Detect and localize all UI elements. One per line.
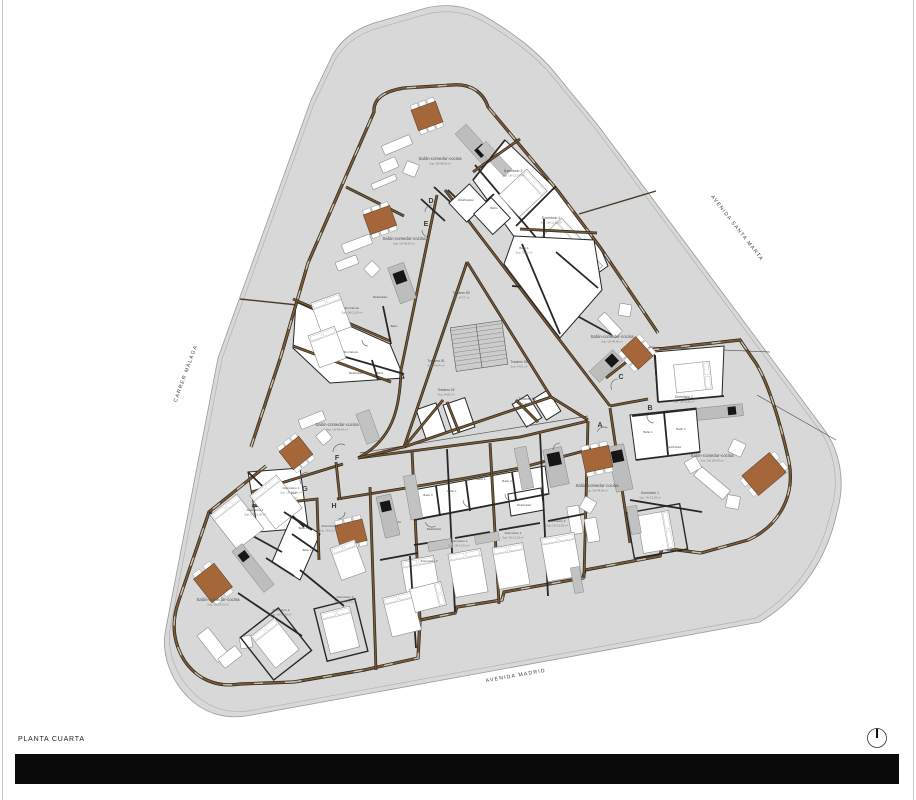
svg-text:Salón-comedor-cocina: Salón-comedor-cocina xyxy=(691,453,735,458)
svg-text:Baño: Baño xyxy=(490,206,498,210)
svg-text:Distribuidor: Distribuidor xyxy=(349,371,364,375)
svg-text:C: C xyxy=(618,374,623,381)
svg-text:Sup. 44,36 m²: Sup. 44,36 m² xyxy=(519,401,536,405)
svg-text:Salón-comedor-cocina: Salón-comedor-cocina xyxy=(197,597,241,602)
svg-text:Baño: Baño xyxy=(391,324,398,328)
svg-text:Baño 2: Baño 2 xyxy=(303,548,312,552)
svg-text:Trastero 51: Trastero 51 xyxy=(427,359,444,363)
svg-text:Sup. Útil 13,26 m²: Sup. Útil 13,26 m² xyxy=(639,495,661,499)
svg-text:Trastero 52: Trastero 52 xyxy=(437,388,454,392)
svg-text:F: F xyxy=(335,455,340,462)
svg-text:Sup. Útil 48,05 m²: Sup. Útil 48,05 m² xyxy=(429,161,451,165)
svg-text:D: D xyxy=(428,198,433,205)
svg-text:Sup. Útil 12,61 m²: Sup. Útil 12,61 m² xyxy=(334,599,356,603)
svg-text:Distribuidor: Distribuidor xyxy=(427,527,442,531)
svg-text:Sup. Útil 11,82 m²: Sup. Útil 11,82 m² xyxy=(673,399,694,403)
svg-text:Salón-comedor-cocina: Salón-comedor-cocina xyxy=(383,236,427,241)
svg-text:Sup. Útil 12,42 m²: Sup. Útil 12,42 m² xyxy=(270,612,292,616)
svg-text:Sup. Útil 13,61 m²: Sup. Útil 13,61 m² xyxy=(448,543,470,547)
svg-text:Distribuidor: Distribuidor xyxy=(373,295,388,299)
svg-text:Dormitorio 1: Dormitorio 1 xyxy=(247,508,264,512)
svg-text:Sup. 44,04 m²: Sup. 44,04 m² xyxy=(428,363,445,367)
svg-text:Sup. 54,77 m²: Sup. 54,77 m² xyxy=(453,295,470,299)
svg-text:Baño 3: Baño 3 xyxy=(423,493,433,497)
svg-text:Dormitorio 2: Dormitorio 2 xyxy=(675,395,693,399)
svg-text:Sup. Útil 53,61 m²: Sup. Útil 53,61 m² xyxy=(207,602,229,606)
svg-text:Trastero 54: Trastero 54 xyxy=(518,397,535,401)
svg-text:B: B xyxy=(647,405,652,412)
svg-text:Sup. Útil 12,36 m²: Sup. Útil 12,36 m² xyxy=(546,523,568,527)
svg-text:Dormitorio 2: Dormitorio 2 xyxy=(549,519,566,523)
svg-text:Sup. Útil 48,38 m²: Sup. Útil 48,38 m² xyxy=(586,488,608,492)
svg-text:Dormitorio 2: Dormitorio 2 xyxy=(504,169,523,173)
svg-text:Dormitorio: Dormitorio xyxy=(345,306,360,310)
svg-text:Trastero 53: Trastero 53 xyxy=(510,360,527,364)
svg-text:H: H xyxy=(331,503,336,510)
svg-text:Dormitorio 1: Dormitorio 1 xyxy=(451,539,468,543)
svg-text:Dormitorio 3: Dormitorio 3 xyxy=(322,524,339,528)
svg-text:Sup. Útil 11,60 m²: Sup. Útil 11,60 m² xyxy=(341,310,362,314)
svg-text:Sup. 44,82 m²: Sup. 44,82 m² xyxy=(438,392,455,396)
svg-text:Dormitorio 2: Dormitorio 2 xyxy=(421,559,438,563)
svg-text:Sup. Útil 48,48 m²: Sup. Útil 48,48 m² xyxy=(326,427,348,431)
svg-text:PLANTA CUARTA: PLANTA CUARTA xyxy=(18,736,85,743)
svg-text:Baño 1: Baño 1 xyxy=(299,526,308,530)
svg-text:Baño 2: Baño 2 xyxy=(676,427,686,431)
svg-text:Sup. 44,01 m²: Sup. 44,01 m² xyxy=(511,364,528,368)
svg-text:Sup. Útil 12,09 m²: Sup. Útil 12,09 m² xyxy=(244,512,266,516)
svg-text:Baño 2: Baño 2 xyxy=(502,479,512,483)
svg-text:Sup. Útil 10,60 m²: Sup. Útil 10,60 m² xyxy=(280,490,302,494)
svg-text:Salón-comedor-cocina: Salón-comedor-cocina xyxy=(419,156,463,161)
svg-text:Dormitorio: Dormitorio xyxy=(344,350,359,354)
svg-text:Sup. Útil 12,26 m²: Sup. Útil 12,26 m² xyxy=(502,535,524,539)
svg-text:Sup. Útil 48,34 m²: Sup. Útil 48,34 m² xyxy=(393,241,415,245)
svg-text:Baño 1: Baño 1 xyxy=(476,477,486,481)
svg-text:Dormitorio 1: Dormitorio 1 xyxy=(505,531,522,535)
svg-text:Distribuidor: Distribuidor xyxy=(458,198,474,202)
svg-text:G: G xyxy=(302,486,308,493)
svg-text:Dormitorio 1: Dormitorio 1 xyxy=(283,486,300,490)
svg-text:E: E xyxy=(424,221,429,228)
svg-text:Salón-comedor-cocina: Salón-comedor-cocina xyxy=(576,483,620,488)
svg-text:Dormitorio 1: Dormitorio 1 xyxy=(641,491,659,495)
svg-text:Baño 1: Baño 1 xyxy=(643,430,653,434)
svg-text:Trastero 50: Trastero 50 xyxy=(452,291,469,295)
svg-text:Sup. 76,12 m²: Sup. 76,12 m² xyxy=(516,250,533,254)
svg-text:Baño 1: Baño 1 xyxy=(519,246,529,250)
svg-text:Sup. Útil 12,42 m²: Sup. Útil 12,42 m² xyxy=(319,528,341,532)
svg-text:Dormitorio 2: Dormitorio 2 xyxy=(273,608,290,612)
svg-text:Baño 1: Baño 1 xyxy=(447,489,457,493)
svg-text:Baño: Baño xyxy=(377,371,384,375)
svg-text:Distribuidor: Distribuidor xyxy=(517,503,532,507)
svg-text:Salón-comedor-cocina: Salón-comedor-cocina xyxy=(591,334,635,339)
svg-text:Sup. Útil 106,48 m²: Sup. Útil 106,48 m² xyxy=(700,458,723,462)
svg-text:Sup. Útil 48,96 m²: Sup. Útil 48,96 m² xyxy=(601,339,623,343)
svg-text:Salón-comedor-cocina: Salón-comedor-cocina xyxy=(316,422,360,427)
svg-text:Distribuidor: Distribuidor xyxy=(667,445,682,449)
svg-text:Sup. Útil 12,70 m²: Sup. Útil 12,70 m² xyxy=(502,173,524,177)
svg-text:Dormitorio 3: Dormitorio 3 xyxy=(337,595,354,599)
